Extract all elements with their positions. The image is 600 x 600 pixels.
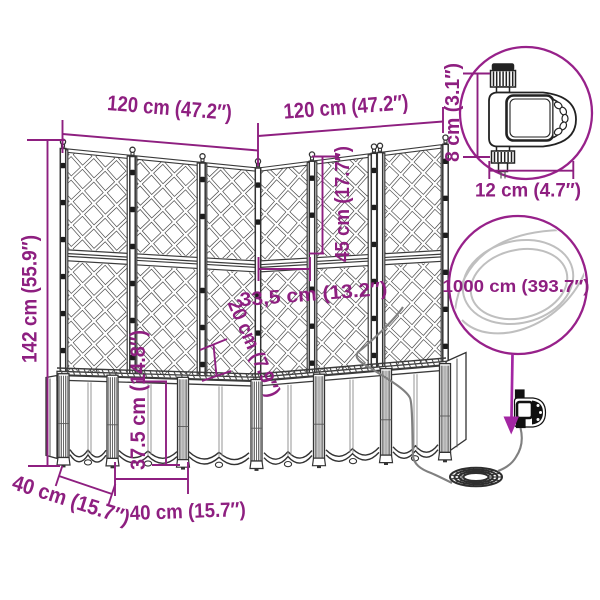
svg-text:40 cm (15.7″): 40 cm (15.7″) bbox=[129, 498, 246, 525]
svg-text:12 cm (4.7″): 12 cm (4.7″) bbox=[475, 180, 581, 202]
svg-text:37.5 cm (14.8″): 37.5 cm (14.8″) bbox=[127, 330, 150, 470]
svg-text:45 cm (17.7″): 45 cm (17.7″) bbox=[331, 146, 354, 262]
svg-text:142 cm (55.9″): 142 cm (55.9″) bbox=[18, 235, 42, 363]
svg-text:8 cm (3.1″): 8 cm (3.1″) bbox=[442, 63, 464, 162]
svg-text:1000 cm (393.7″): 1000 cm (393.7″) bbox=[443, 276, 590, 296]
